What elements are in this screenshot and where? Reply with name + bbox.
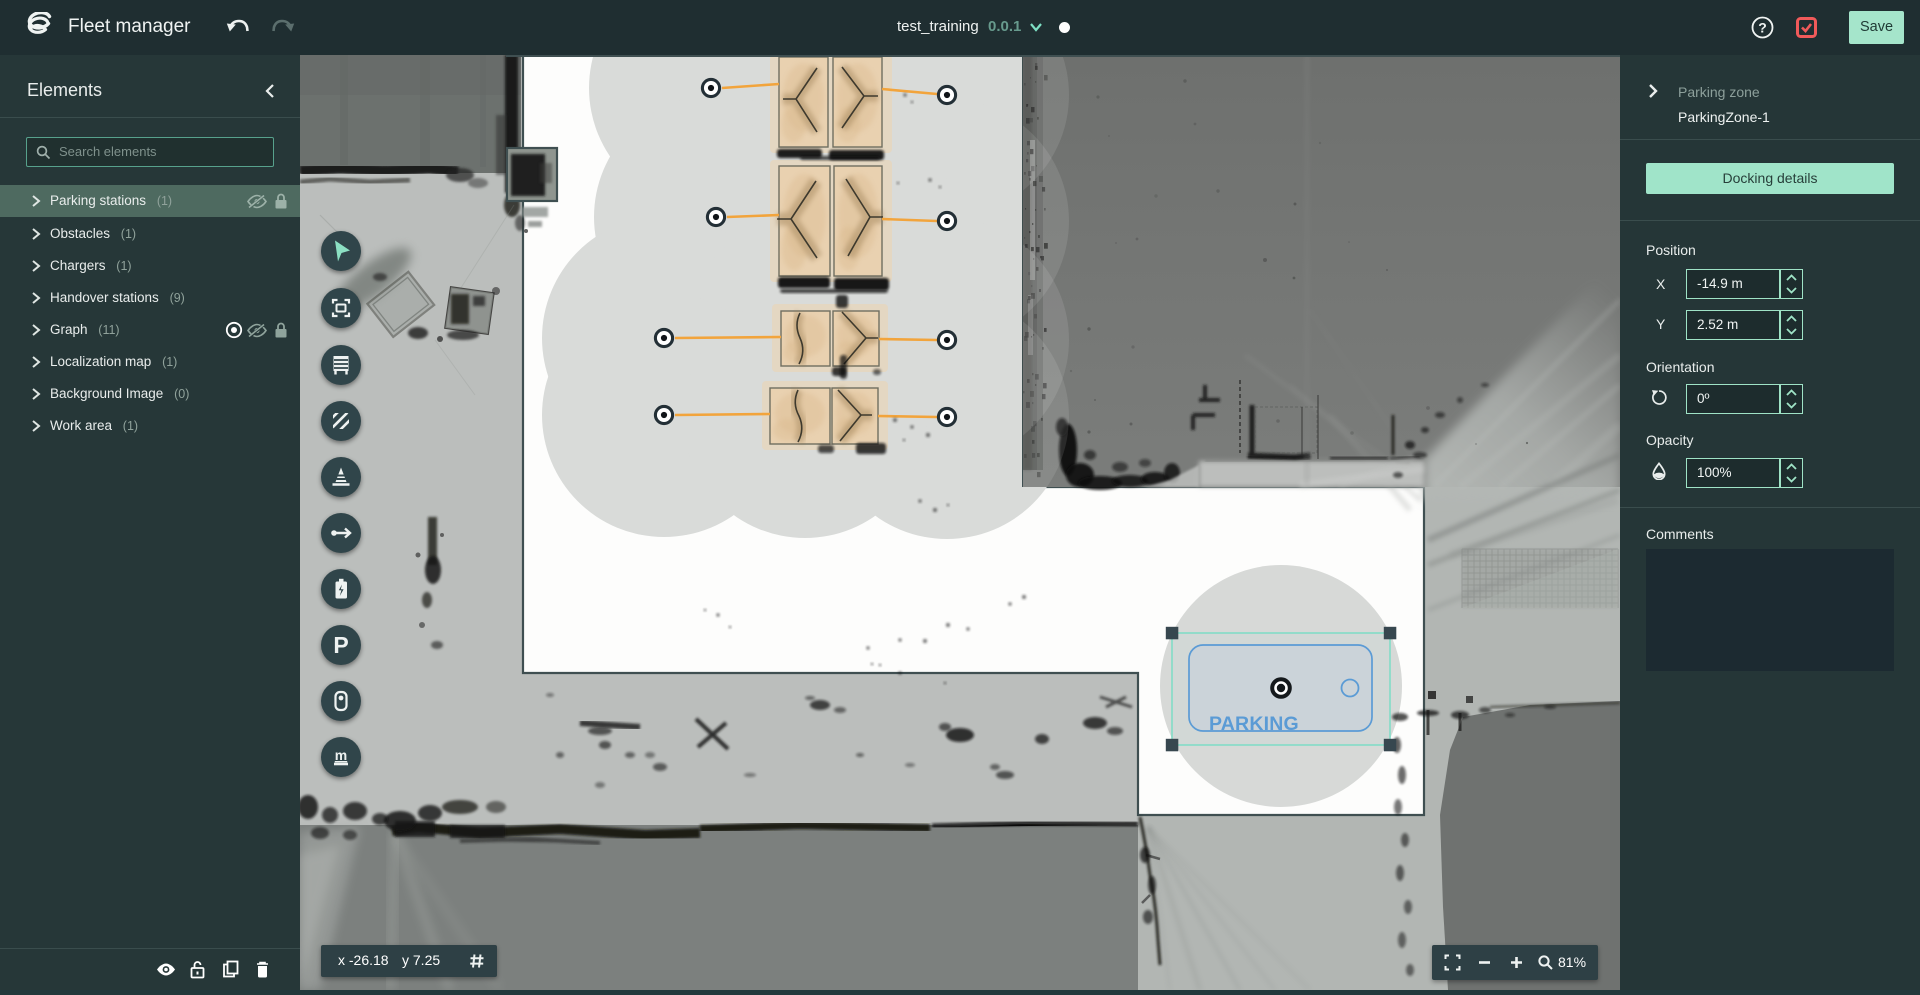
svg-text:PARKING: PARKING [1209, 713, 1299, 735]
svg-text:?: ? [1758, 20, 1767, 36]
svg-text:P: P [333, 632, 348, 658]
svg-text:m: m [335, 747, 347, 763]
